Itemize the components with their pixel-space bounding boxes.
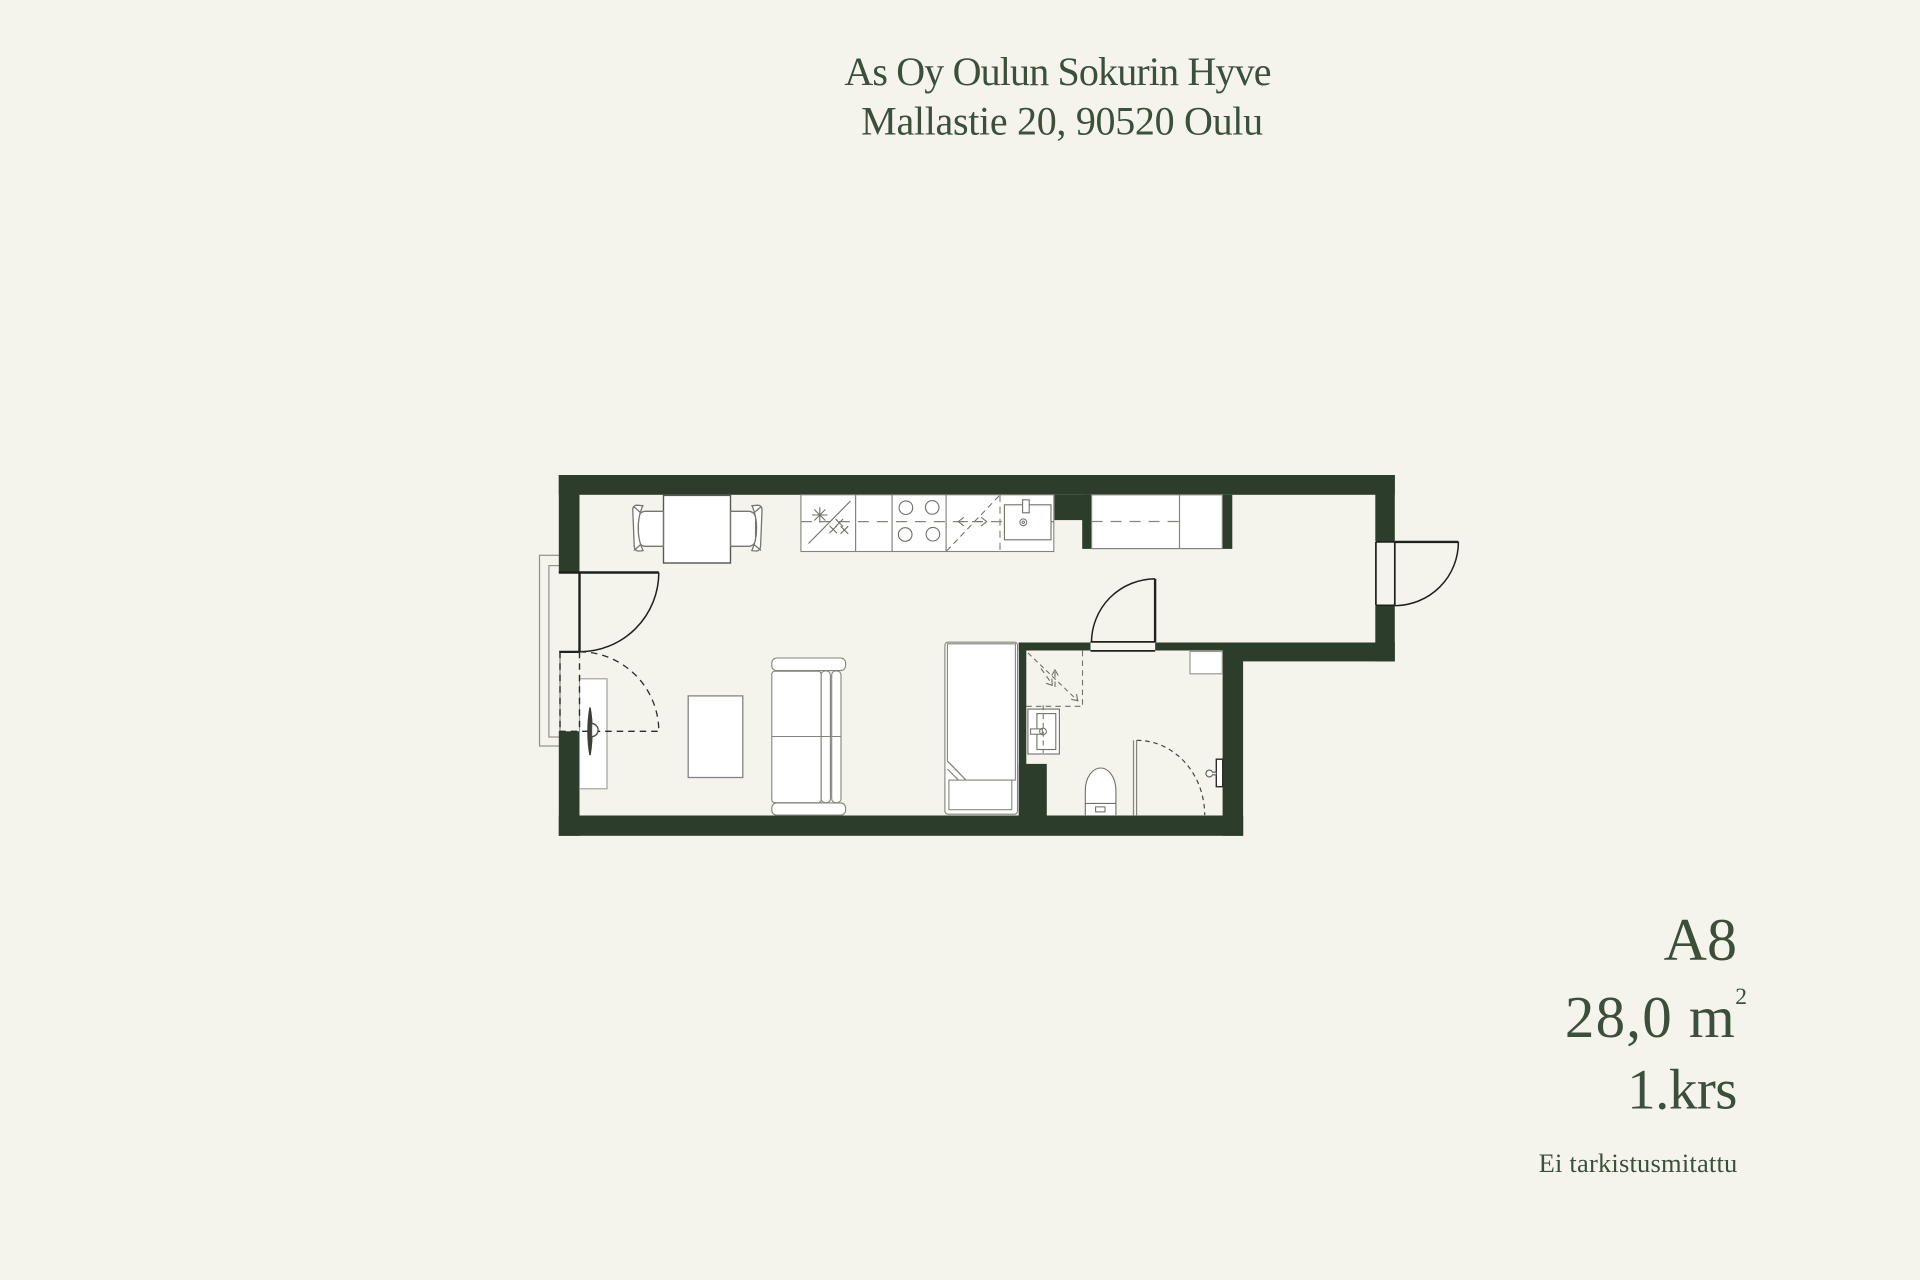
svg-text:A8: A8 [1664, 907, 1737, 973]
svg-text:1.krs: 1.krs [1627, 1059, 1737, 1122]
svg-text:28,0 m: 28,0 m [1565, 984, 1736, 1050]
svg-text:2: 2 [1735, 984, 1747, 1010]
svg-text:Mallastie 20, 90520 Oulu: Mallastie 20, 90520 Oulu [861, 99, 1263, 144]
svg-text:As Oy Oulun Sokurin Hyve: As Oy Oulun Sokurin Hyve [844, 49, 1270, 94]
svg-text:Ei tarkistusmitattu: Ei tarkistusmitattu [1539, 1148, 1738, 1178]
